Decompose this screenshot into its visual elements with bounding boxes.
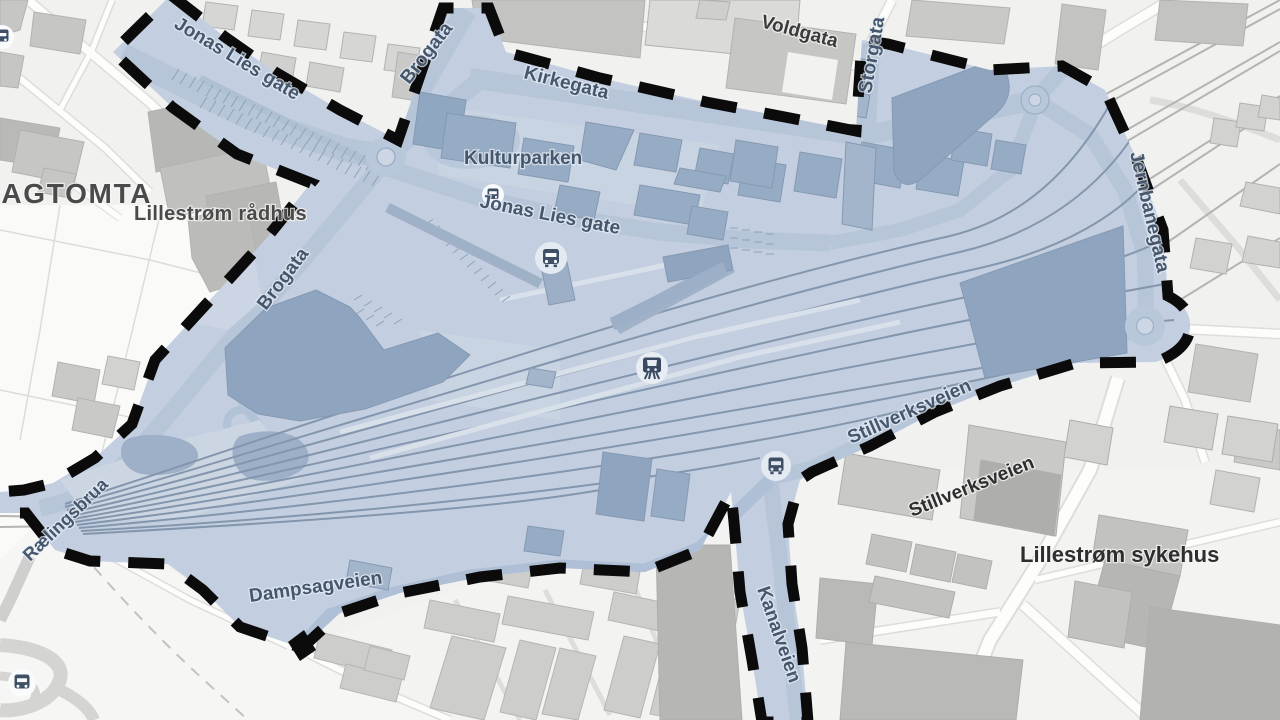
svg-text:Kulturparken: Kulturparken	[464, 148, 582, 169]
svg-text:SAGTOMTA: SAGTOMTA	[0, 178, 152, 209]
svg-text:Lillestrøm rådhus: Lillestrøm rådhus	[134, 202, 307, 225]
svg-text:Lillestrøm sykehus: Lillestrøm sykehus	[1020, 542, 1219, 567]
